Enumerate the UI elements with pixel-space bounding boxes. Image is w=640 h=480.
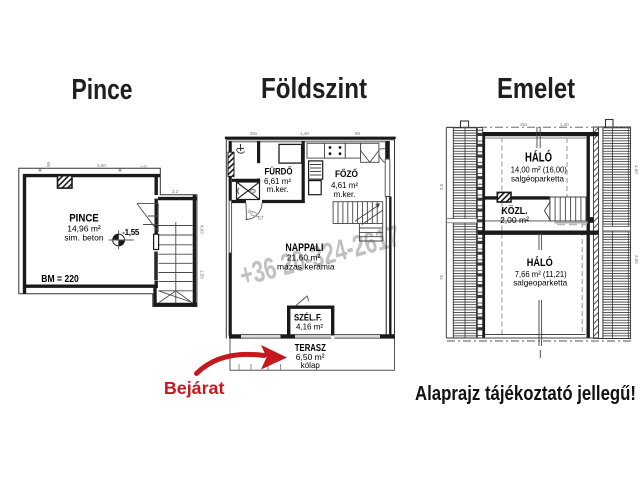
- svg-text:+-0: +-0: [140, 164, 147, 169]
- svg-text:57: 57: [258, 216, 264, 222]
- svg-text:sim. beton: sim. beton: [64, 232, 103, 242]
- svg-text:75: 75: [439, 274, 444, 280]
- svg-text:BM = 220: BM = 220: [41, 274, 79, 285]
- svg-text:25x: 25x: [520, 122, 528, 127]
- svg-text:kólap: kólap: [301, 361, 321, 370]
- svg-text:90: 90: [355, 131, 361, 136]
- svg-text:2,00 m²: 2,00 m²: [500, 215, 529, 225]
- svg-text:m.ker.: m.ker.: [334, 190, 356, 199]
- svg-text:4,03: 4,03: [200, 225, 205, 234]
- svg-text:SZÉL.F.: SZÉL.F.: [294, 312, 322, 322]
- svg-text:4,61 m²: 4,61 m²: [331, 181, 358, 190]
- svg-text:Alaprajz tájékoztató jellegű!: Alaprajz tájékoztató jellegű!: [415, 382, 636, 405]
- svg-text:1,55: 1,55: [200, 270, 205, 279]
- svg-text:1,40: 1,40: [560, 122, 569, 127]
- svg-text:90: 90: [46, 161, 51, 167]
- svg-text:salgéoparketta: salgéoparketta: [511, 173, 564, 183]
- svg-text:2,5: 2,5: [439, 183, 444, 190]
- svg-text:3,05: 3,05: [634, 255, 639, 264]
- svg-text:Pince: Pince: [72, 74, 133, 106]
- svg-text:FÜRDŐ: FÜRDŐ: [265, 166, 293, 178]
- svg-text:HÁLÓ: HÁLÓ: [527, 256, 553, 269]
- svg-text:2,2: 2,2: [172, 189, 179, 194]
- svg-text:m.ker.: m.ker.: [267, 185, 289, 194]
- svg-text:HÁLÓ: HÁLÓ: [525, 149, 552, 164]
- svg-text:salgeoparketta: salgeoparketta: [513, 277, 567, 287]
- svg-text:Emelet: Emelet: [497, 73, 575, 105]
- svg-text:Bejárat: Bejárat: [164, 378, 225, 398]
- svg-text:mázas kerámia: mázas kerámia: [277, 261, 335, 271]
- svg-text:3,90: 3,90: [97, 163, 106, 168]
- svg-text:-1,55: -1,55: [122, 228, 140, 237]
- svg-text:1,40: 1,40: [300, 131, 309, 136]
- svg-text:25x: 25x: [250, 131, 258, 136]
- svg-text:Földszint: Földszint: [261, 73, 367, 105]
- svg-text:4,60: 4,60: [634, 165, 639, 174]
- svg-text:4,16 m²: 4,16 m²: [296, 322, 323, 331]
- svg-text:FŐZŐ: FŐZŐ: [335, 168, 358, 180]
